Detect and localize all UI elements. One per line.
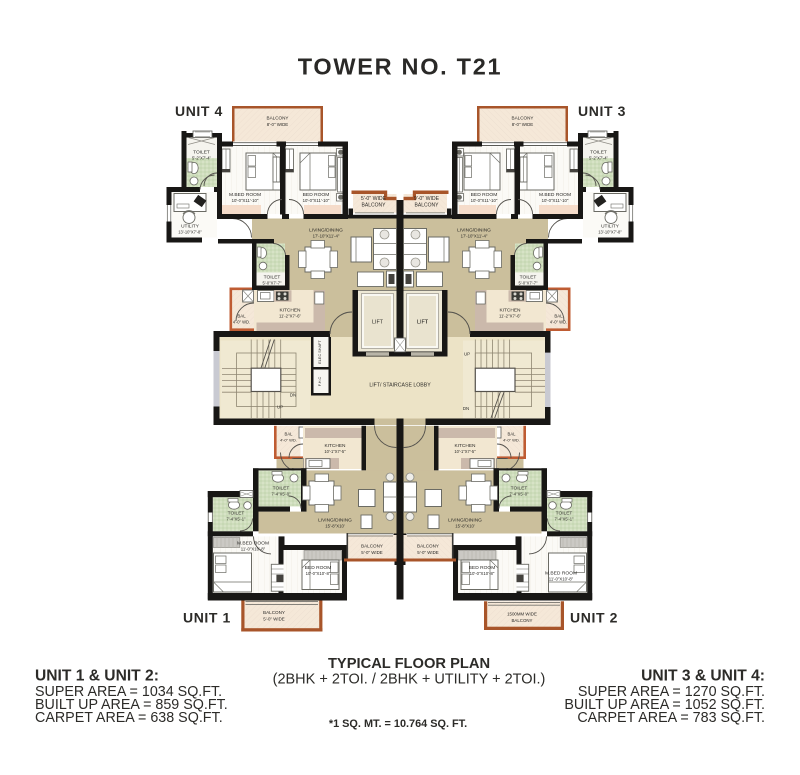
svg-text:5'-0"X7'-7": 5'-0"X7'-7" — [518, 281, 538, 286]
svg-text:LIFT/ STAIRCASE LOBBY: LIFT/ STAIRCASE LOBBY — [369, 383, 431, 389]
svg-text:5'-0"X7'-7": 5'-0"X7'-7" — [262, 281, 282, 286]
svg-text:9'-0" WIDE: 9'-0" WIDE — [414, 196, 440, 202]
svg-text:BALCONY: BALCONY — [512, 618, 533, 623]
svg-text:(2BHK + 2TOI. / 2BHK + UTILITY: (2BHK + 2TOI. / 2BHK + UTILITY + 2TOI.) — [273, 672, 546, 688]
svg-text:5'-0" WIDE: 5'-0" WIDE — [361, 196, 387, 202]
svg-text:DN: DN — [463, 406, 469, 411]
svg-text:1500MM WIDE: 1500MM WIDE — [507, 612, 537, 617]
svg-text:11'-0"X10'-8": 11'-0"X10'-8" — [241, 547, 266, 552]
svg-text:10'-0"X10'-8": 10'-0"X10'-8" — [306, 571, 331, 576]
svg-text:CARPET AREA = 783 SQ.FT.: CARPET AREA = 783 SQ.FT. — [577, 710, 765, 726]
svg-text:BALCONY: BALCONY — [512, 116, 534, 121]
svg-text:5'-0" WIDE: 5'-0" WIDE — [263, 616, 284, 621]
svg-text:UP: UP — [277, 405, 283, 410]
svg-text:11'-2"X7'-6": 11'-2"X7'-6" — [279, 314, 302, 319]
svg-text:F.H.C: F.H.C — [318, 377, 322, 387]
svg-text:11'-2"X7'-6": 11'-2"X7'-6" — [499, 314, 522, 319]
svg-text:8'-0" WIDE: 8'-0" WIDE — [512, 122, 533, 127]
svg-text:8'-0" WIDE: 8'-0" WIDE — [267, 122, 288, 127]
svg-text:4'-0" WD.: 4'-0" WD. — [233, 320, 250, 325]
svg-text:DN: DN — [290, 393, 296, 398]
svg-text:4'-0" WD.: 4'-0" WD. — [503, 438, 520, 443]
svg-text:10'-0"X11'-10": 10'-0"X11'-10" — [471, 198, 498, 203]
svg-text:UNIT 1 & UNIT 2:: UNIT 1 & UNIT 2: — [35, 668, 159, 685]
svg-text:BAL: BAL — [237, 314, 246, 319]
svg-text:7'-4"X5'-0": 7'-4"X5'-0" — [271, 492, 291, 497]
svg-text:UNIT 4: UNIT 4 — [175, 103, 223, 119]
svg-text:*1 SQ. MT. = 10.764 SQ. FT.: *1 SQ. MT. = 10.764 SQ. FT. — [329, 718, 467, 730]
svg-text:BAL: BAL — [285, 432, 294, 437]
svg-text:BALCONY: BALCONY — [417, 544, 439, 549]
svg-text:13'-10"X7'-8": 13'-10"X7'-8" — [178, 230, 202, 235]
svg-text:5'-2"X7'-4": 5'-2"X7'-4" — [589, 155, 609, 160]
svg-text:7'-4"X5'-1": 7'-4"X5'-1" — [554, 517, 574, 522]
svg-text:4'-0" WD.: 4'-0" WD. — [550, 320, 567, 325]
svg-text:15'-8"X10': 15'-8"X10' — [455, 524, 475, 529]
svg-text:17'-10"X11'-4": 17'-10"X11'-4" — [461, 234, 488, 239]
svg-text:ELEC SHAFT: ELEC SHAFT — [318, 340, 322, 364]
svg-text:LIFT: LIFT — [417, 320, 429, 326]
svg-text:BALCONY: BALCONY — [361, 544, 383, 549]
svg-text:CARPET AREA = 638 SQ.FT.: CARPET AREA = 638 SQ.FT. — [35, 710, 223, 726]
svg-text:UNIT 3: UNIT 3 — [578, 103, 626, 119]
svg-text:7'-4"X5'-0": 7'-4"X5'-0" — [509, 492, 529, 497]
svg-text:BALCONY: BALCONY — [362, 203, 387, 209]
svg-text:10'-0"X11'-10": 10'-0"X11'-10" — [303, 198, 330, 203]
svg-text:UNIT 1: UNIT 1 — [183, 610, 231, 626]
svg-text:UP: UP — [464, 352, 470, 357]
svg-text:BALCONY: BALCONY — [415, 203, 440, 209]
svg-text:15'-8"X10': 15'-8"X10' — [325, 524, 345, 529]
svg-text:UNIT 2: UNIT 2 — [570, 610, 618, 626]
svg-text:5'-0" WIDE: 5'-0" WIDE — [417, 550, 438, 555]
svg-text:10'-1"X7'-5": 10'-1"X7'-5" — [454, 449, 476, 454]
svg-text:17'-10"X11'-4": 17'-10"X11'-4" — [313, 234, 340, 239]
svg-text:TOWER NO. T21: TOWER NO. T21 — [298, 54, 502, 80]
svg-text:10'-0"X11'-10": 10'-0"X11'-10" — [232, 198, 259, 203]
svg-text:5'-0" WIDE: 5'-0" WIDE — [361, 550, 382, 555]
svg-text:10'-1"X7'-5": 10'-1"X7'-5" — [324, 449, 346, 454]
svg-text:13'-10"X7'-8": 13'-10"X7'-8" — [598, 230, 622, 235]
svg-text:BALCONY: BALCONY — [263, 610, 285, 615]
svg-text:10'-0"X10'-8": 10'-0"X10'-8" — [470, 571, 495, 576]
svg-text:UNIT 3 & UNIT 4:: UNIT 3 & UNIT 4: — [641, 668, 765, 685]
svg-text:BAL: BAL — [554, 314, 563, 319]
svg-text:BAL: BAL — [508, 432, 517, 437]
svg-text:11'-0"X10'-8": 11'-0"X10'-8" — [549, 577, 574, 582]
svg-text:10'-0"X11'-10": 10'-0"X11'-10" — [542, 198, 569, 203]
svg-text:7'-4"X5'-1": 7'-4"X5'-1" — [226, 517, 246, 522]
svg-text:TYPICAL FLOOR PLAN: TYPICAL FLOOR PLAN — [328, 656, 490, 672]
svg-text:4'-0" WD.: 4'-0" WD. — [280, 438, 297, 443]
svg-text:BALCONY: BALCONY — [267, 116, 289, 121]
svg-text:LIFT: LIFT — [372, 320, 384, 326]
svg-text:5'-2"X7'-4": 5'-2"X7'-4" — [192, 155, 212, 160]
